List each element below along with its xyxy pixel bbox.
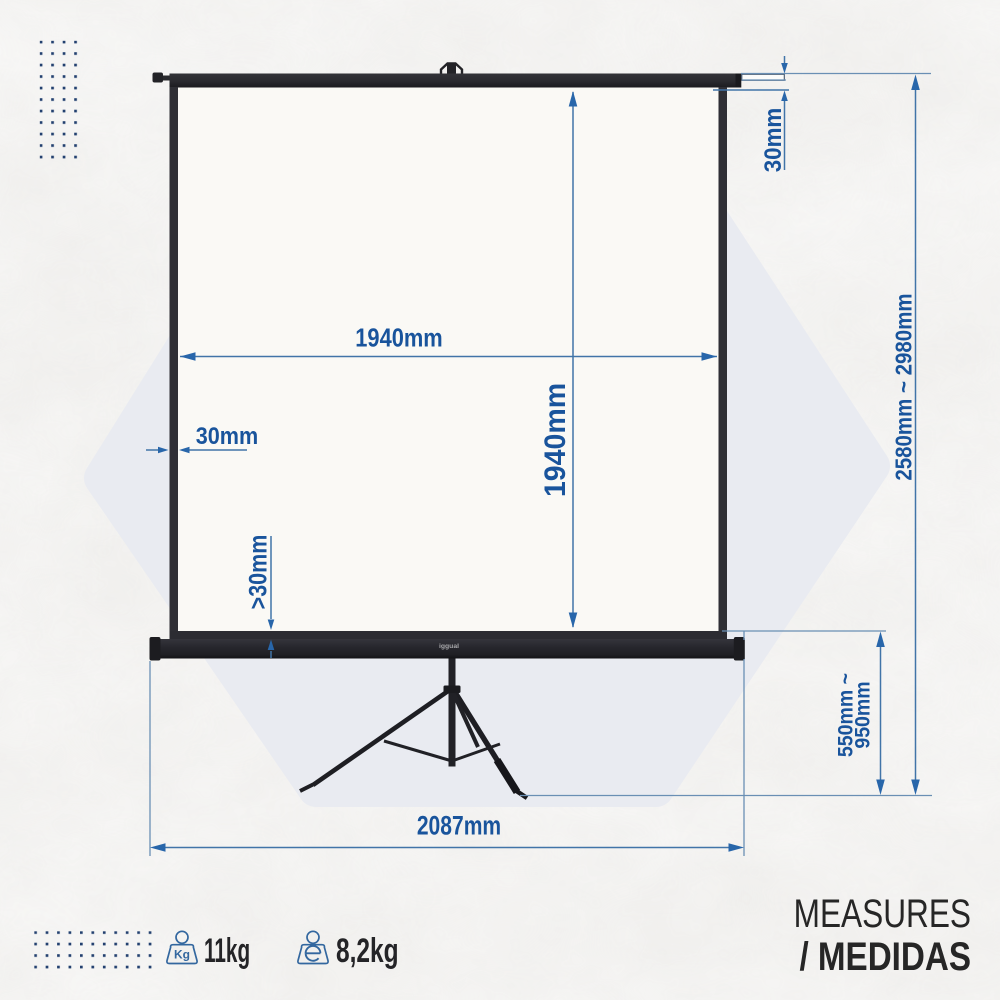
svg-text:Kg: Kg — [174, 948, 190, 962]
